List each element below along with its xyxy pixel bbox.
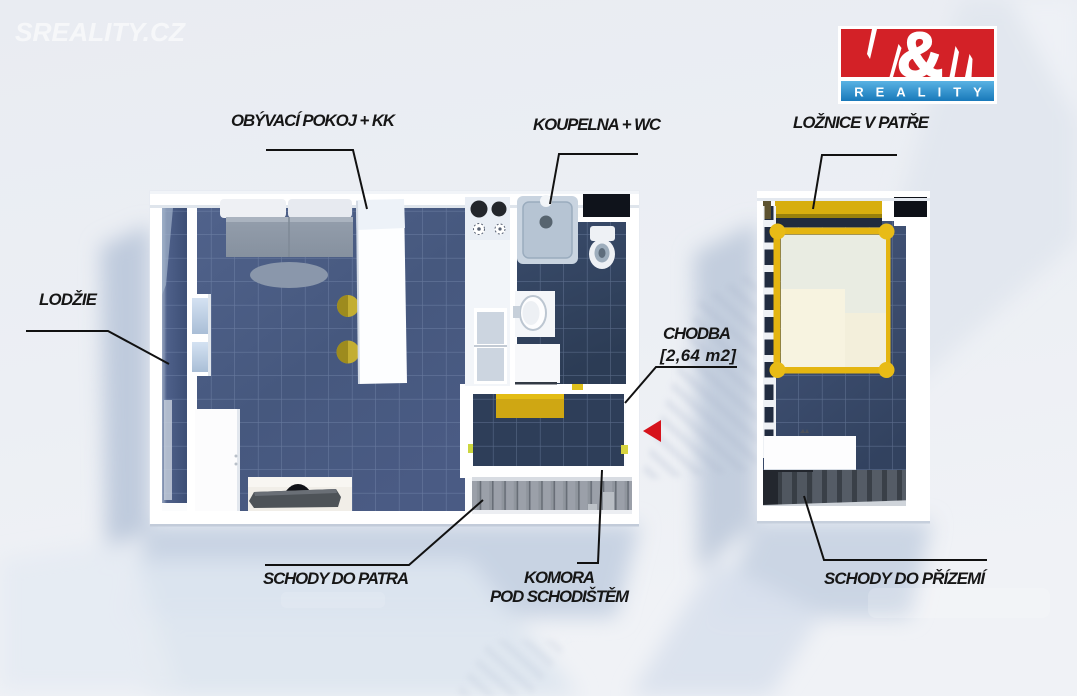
svg-text:LODŽIE: LODŽIE <box>39 290 98 309</box>
svg-text:REALITY: REALITY <box>854 85 994 100</box>
svg-text:POD SCHODIŠTĚM: POD SCHODIŠTĚM <box>490 587 630 606</box>
svg-text:SCHODY DO PŘÍZEMÍ: SCHODY DO PŘÍZEMÍ <box>824 569 988 588</box>
svg-text:KOMORA: KOMORA <box>524 568 595 587</box>
svg-text:SCHODY DO PATRA: SCHODY DO PATRA <box>263 569 409 588</box>
svg-text:CHODBA: CHODBA <box>663 324 731 343</box>
svg-text:[2,64 m2]: [2,64 m2] <box>659 346 737 365</box>
svg-text:SREALITY.CZ: SREALITY.CZ <box>15 17 186 47</box>
svg-text:KOUPELNA + WC: KOUPELNA + WC <box>533 115 662 134</box>
svg-text:LOŽNICE V PATŘE: LOŽNICE V PATŘE <box>793 113 930 132</box>
svg-text:OBÝVACÍ POKOJ + KK: OBÝVACÍ POKOJ + KK <box>231 111 397 130</box>
